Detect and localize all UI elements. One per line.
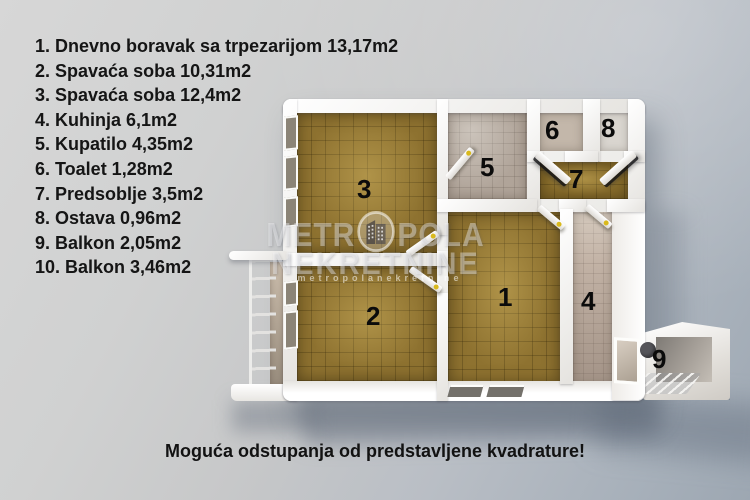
room-label-2: 2 [366,303,380,329]
wall [607,199,645,212]
legend-item: 7. Predsoblje 3,5m2 [35,182,398,207]
legend-item: 5. Kupatilo 4,35m2 [35,132,398,157]
wall [565,151,598,162]
legend-item: 3. Spavaća soba 12,4m2 [35,83,398,108]
legend-item: 4. Kuhinja 6,1m2 [35,108,398,133]
room-label-8: 8 [601,115,615,141]
door-handle-icon [465,150,472,157]
kitchen-balcony-window [614,337,640,385]
room-label-5: 5 [480,154,494,180]
window [486,385,524,397]
door-handle-icon [556,221,563,228]
window [447,385,483,397]
legend-item: 2. Spavaća soba 10,31m2 [35,59,398,84]
wall [560,209,573,384]
room-label-6: 6 [545,117,559,143]
door-handle-icon [603,219,610,226]
room-label-9: 9 [652,346,666,372]
room-label-1: 1 [498,284,512,310]
legend-item: 1. Dnevno boravak sa trpezarijom 13,17m2 [35,34,398,59]
legend-item: 8. Ostava 0,96m2 [35,206,398,231]
legend-item: 6. Toalet 1,28m2 [35,157,398,182]
wall [437,293,448,401]
room-legend: 1. Dnevno boravak sa trpezarijom 13,17m2… [35,34,398,280]
window [284,310,298,349]
room-label-7: 7 [569,166,583,192]
door-handle-icon [433,283,440,290]
legend-item: 10. Balkon 3,46m2 [35,255,398,280]
room-label-4: 4 [581,288,595,314]
disclaimer-caption: Moguća odstupanja od predstavljene kvadr… [0,441,750,462]
floorplan-image: 1. Dnevno boravak sa trpezarijom 13,17m2… [0,0,750,500]
legend-item: 9. Balkon 2,05m2 [35,231,398,256]
window [284,280,298,306]
building-shadow [232,400,317,432]
